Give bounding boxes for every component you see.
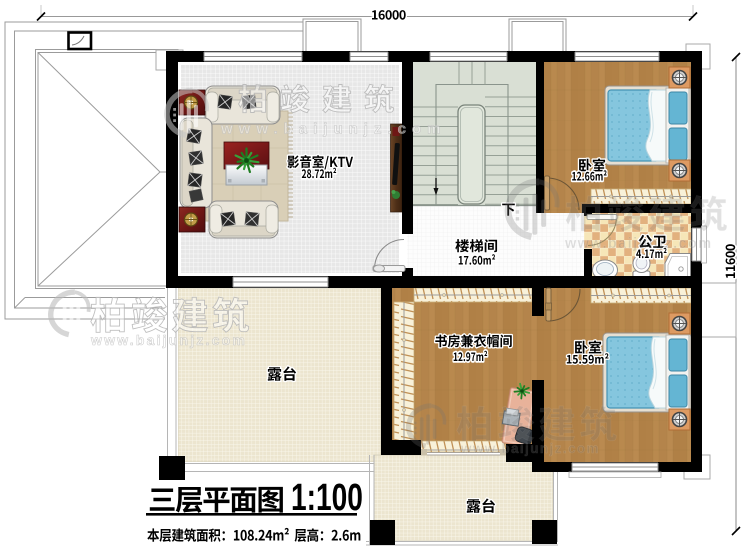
svg-text:www.baijunjz.com: www.baijunjz.com [460, 441, 600, 456]
svg-text:1:100: 1:100 [291, 477, 363, 519]
svg-text:www.baijunjz.com: www.baijunjz.com [564, 236, 713, 252]
svg-text:www.baijunjz.com: www.baijunjz.com [220, 121, 446, 138]
svg-text:www.baijunjz.com: www.baijunjz.com [90, 332, 247, 348]
